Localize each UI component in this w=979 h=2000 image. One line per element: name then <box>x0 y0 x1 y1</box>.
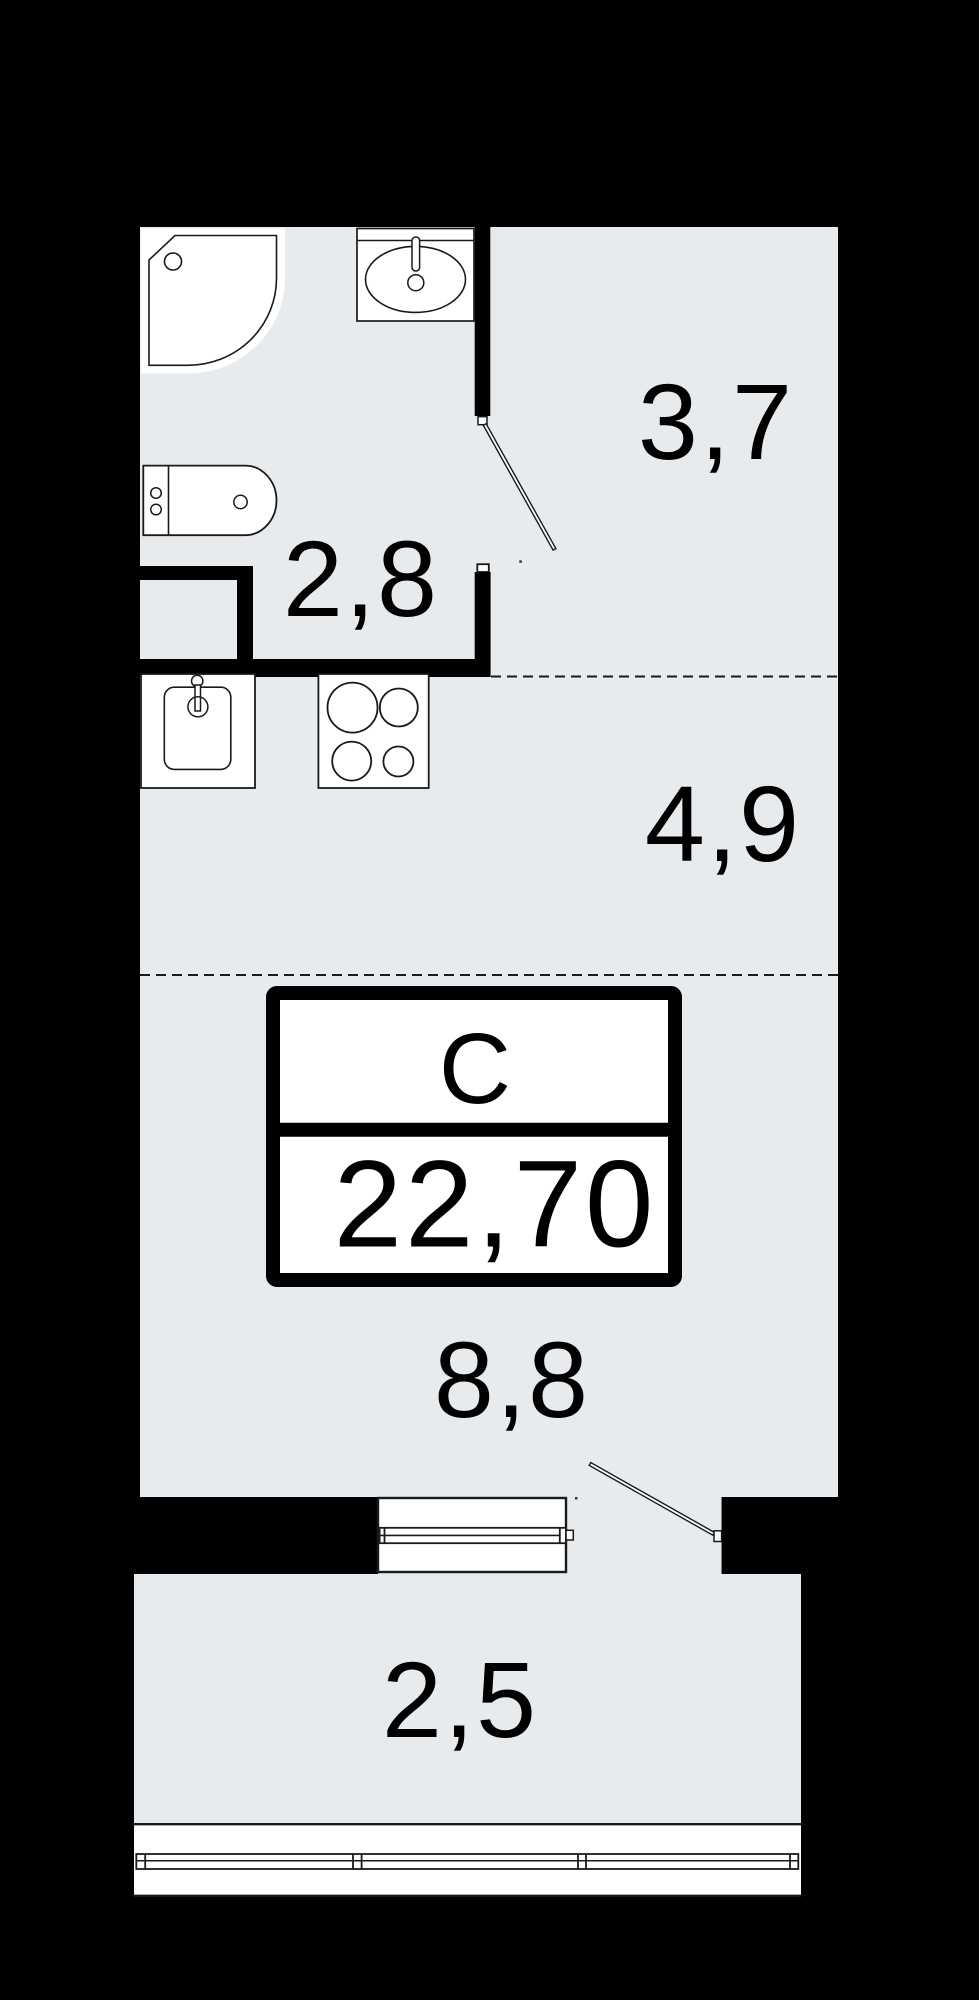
svg-text:4,9: 4,9 <box>645 763 801 884</box>
svg-text:2,5: 2,5 <box>382 1639 538 1760</box>
svg-text:2,8: 2,8 <box>283 518 439 639</box>
svg-text:3,7: 3,7 <box>638 361 794 482</box>
svg-text:8,8: 8,8 <box>434 1319 590 1440</box>
svg-text:22,70: 22,70 <box>334 1137 657 1274</box>
svg-text:С: С <box>439 1013 511 1125</box>
